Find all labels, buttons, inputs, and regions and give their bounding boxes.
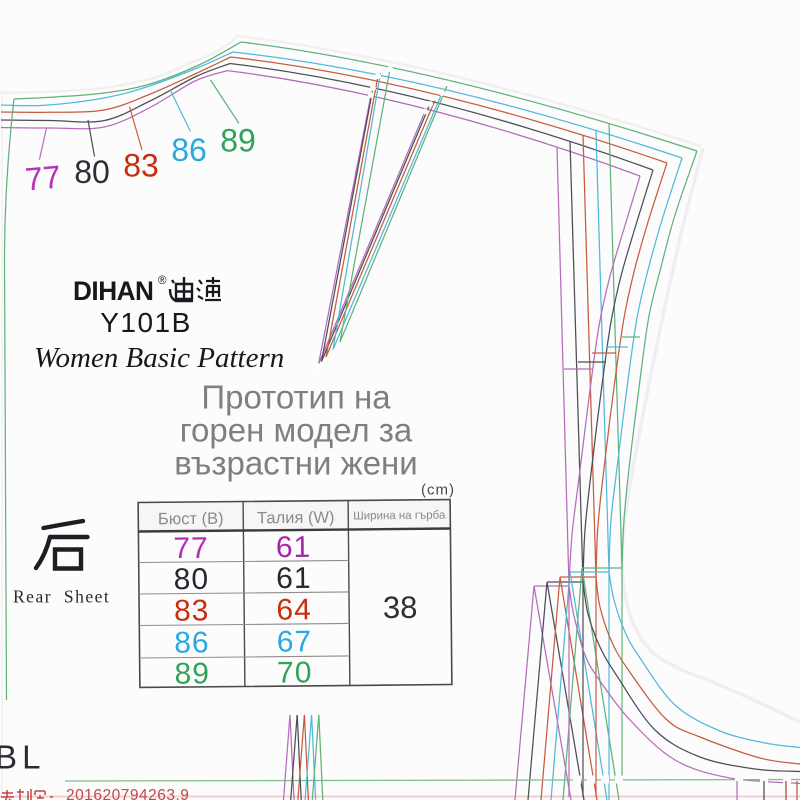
svg-text:B L: B L (0, 739, 41, 776)
svg-text:Y101B: Y101B (100, 307, 192, 338)
svg-text:Women Basic Pattern: Women Basic Pattern (34, 342, 284, 374)
svg-text:77: 77 (24, 159, 63, 198)
svg-text:®: ® (158, 275, 167, 287)
svg-text:89: 89 (174, 657, 210, 690)
svg-text:Ширина на гърба: Ширина на гърба (353, 510, 446, 523)
svg-text:83: 83 (123, 148, 159, 184)
svg-text:80: 80 (74, 154, 110, 190)
svg-text:86: 86 (174, 626, 210, 659)
svg-text:83: 83 (174, 594, 210, 627)
svg-text:DIHAN: DIHAN (73, 276, 153, 306)
svg-text:86: 86 (171, 132, 207, 168)
svg-text:Rear Sheet: Rear Sheet (13, 587, 110, 607)
svg-text:89: 89 (220, 123, 256, 159)
svg-text:Прототип на: Прототип на (201, 379, 391, 416)
svg-text:възрастни жени: възрастни жени (174, 445, 417, 482)
svg-text:Талия (W): Талия (W) (257, 509, 335, 528)
svg-text:67: 67 (277, 625, 313, 658)
svg-text:Бюст (B): Бюст (B) (158, 510, 224, 529)
svg-text:(cm): (cm) (421, 482, 455, 499)
svg-text:70: 70 (277, 656, 313, 689)
svg-text:61: 61 (276, 562, 312, 595)
svg-text:64: 64 (276, 593, 312, 626)
svg-text:77: 77 (173, 532, 209, 565)
svg-text:горен модел за: горен модел за (180, 412, 413, 449)
svg-text:201620794263.9: 201620794263.9 (66, 787, 189, 800)
svg-text:61: 61 (276, 531, 312, 564)
svg-text:38: 38 (383, 590, 418, 625)
svg-text:80: 80 (174, 563, 210, 596)
